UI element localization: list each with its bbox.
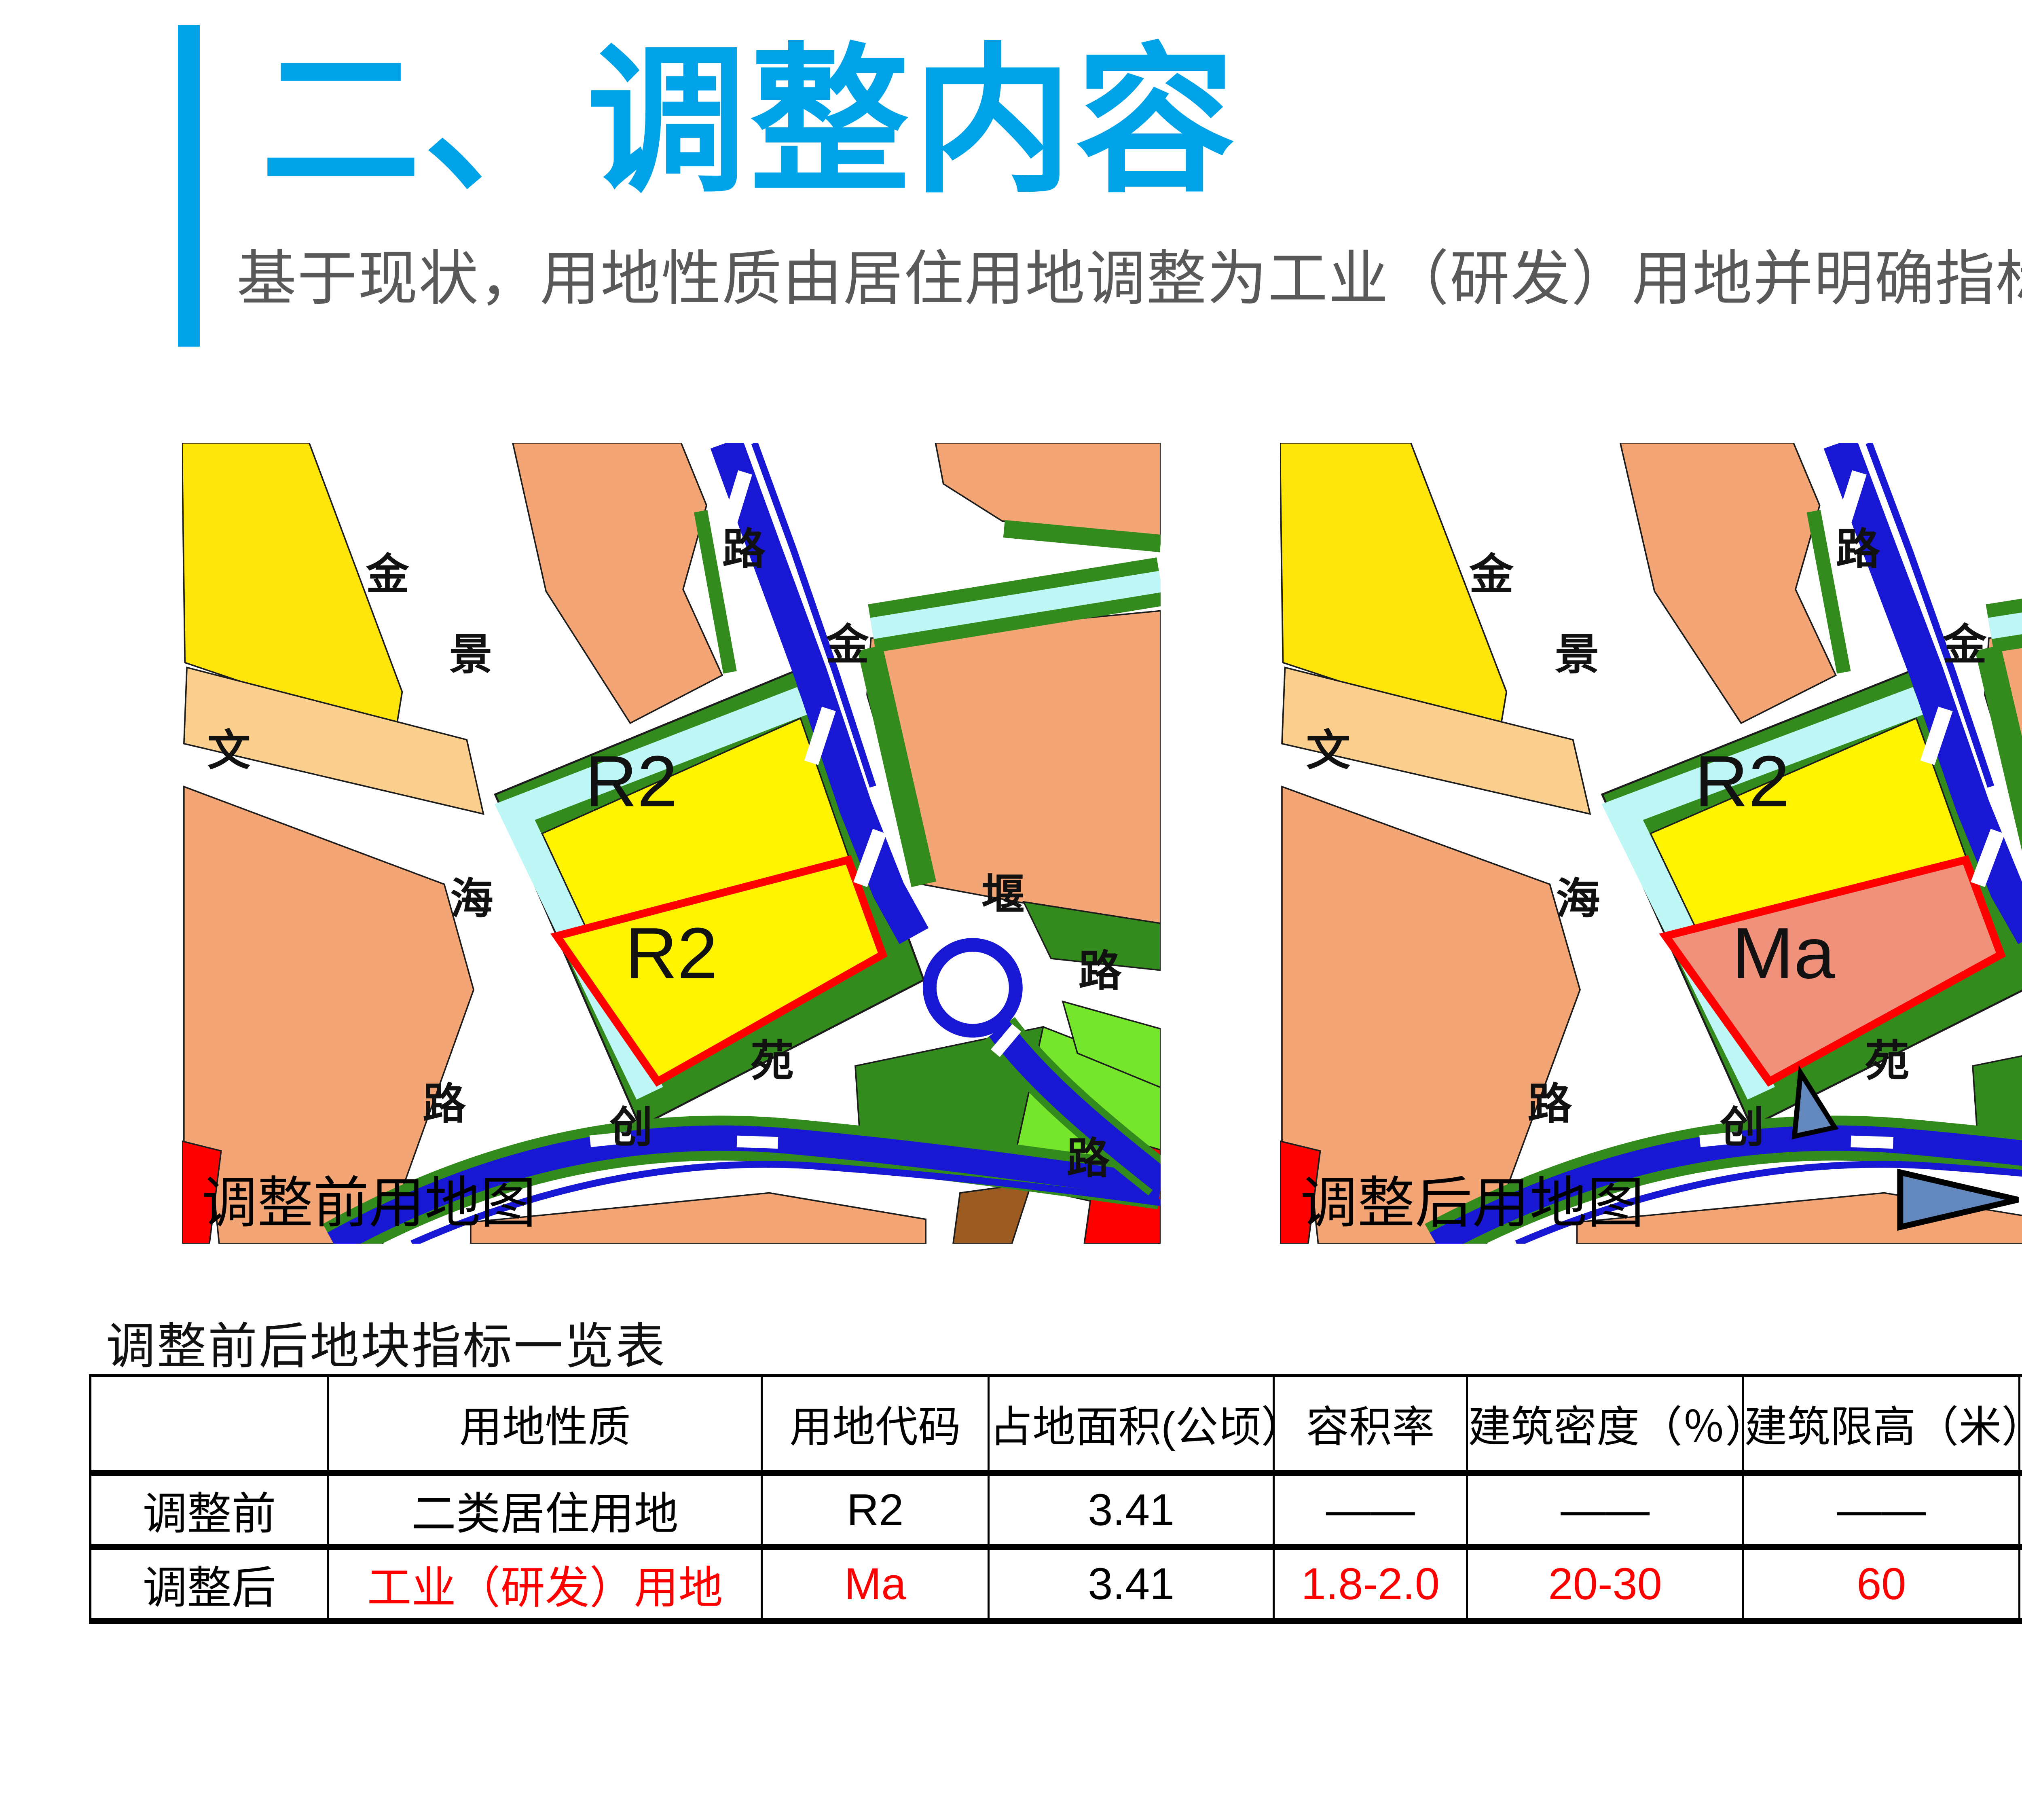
map-road-label: 苑: [751, 1037, 793, 1085]
map-caption: 调整后用地图: [1300, 1172, 1644, 1234]
table-cell: ——: [1743, 1473, 2020, 1547]
table-row-label: 调整前: [90, 1473, 328, 1547]
table-cell: ——: [1274, 1473, 1467, 1547]
table-cell: 20-30: [1467, 1547, 1743, 1621]
map-road-label: 创: [609, 1103, 653, 1151]
map-road-label: 路: [1836, 525, 1880, 573]
table-title: 调整前后地块指标一览表: [106, 1306, 666, 1378]
creek-bridge-mark: [737, 1136, 778, 1149]
table-header-cell: 容积率: [1274, 1376, 1467, 1473]
map-road-label: 金: [366, 550, 409, 599]
table-header-cell: 建筑密度（％）: [1467, 1376, 1743, 1473]
map-road-label: 金: [825, 621, 869, 669]
map-road-label: 金: [1942, 621, 1987, 669]
creek-bridge-mark: [1851, 1136, 1893, 1149]
table-header-cell: 用地性质: [328, 1376, 762, 1473]
upper-parcel-label: R2: [1694, 741, 1790, 822]
table-header-cell: 建筑限高（米）: [1743, 1376, 2020, 1473]
table-header-cell: [90, 1376, 328, 1473]
map-before-svg: 金景路金文海堰路苑路创路R2R2调整前用地图: [182, 443, 1161, 1244]
map-road-label: 苑: [1865, 1037, 1910, 1085]
page-title: 二、调整内容: [261, 28, 1239, 214]
subtitle-text: 基于现状，用地性质由居住用地调整为工业（研发）用地并明确指标。: [237, 237, 2022, 322]
map-road-label: 路: [1079, 947, 1122, 995]
upper-parcel-label: R2: [585, 741, 677, 821]
map-road-label: 金: [1469, 550, 1514, 599]
table-cell: 3.41: [989, 1547, 1274, 1621]
map-caption: 调整前用地图: [201, 1172, 536, 1234]
table-header-cell: 绿化率（％）: [2020, 1376, 2022, 1473]
table-cell: 3.41: [989, 1473, 1274, 1547]
table-cell: 1.8-2.0: [1274, 1547, 1467, 1621]
table-row: 调整前二类居住用地R23.41————————: [90, 1473, 2022, 1547]
map-road-label: 文: [1306, 726, 1351, 774]
table-header-cell: 占地面积(公顷）: [989, 1376, 1274, 1473]
table-header-row: 用地性质用地代码占地面积(公顷）容积率建筑密度（％）建筑限高（米）绿化率（％）: [90, 1376, 2022, 1473]
map-road-label: 海: [1556, 874, 1600, 923]
map-after-svg: 金景路金文海堰路苑路创路R2Ma调整后用地图出入口建议位置: [1280, 443, 2022, 1244]
map-road-label: 路: [423, 1080, 466, 1128]
table-header-cell: 用地代码: [762, 1376, 989, 1473]
table-cell: 二类居住用地: [328, 1473, 762, 1547]
landuse-map-before: 金景路金文海堰路苑路创路R2R2调整前用地图: [182, 443, 1161, 1244]
map-road-label: 路: [1067, 1134, 1110, 1183]
table-cell: ——: [2020, 1473, 2022, 1547]
lower-parcel-label: R2: [625, 912, 718, 993]
map-road-label: 景: [1555, 631, 1599, 679]
table-cell: 工业（研发）用地: [328, 1547, 762, 1621]
landuse-map-after: 金景路金文海堰路苑路创路R2Ma调整后用地图出入口建议位置: [1280, 443, 2022, 1244]
map-road-label: 路: [1528, 1079, 1573, 1128]
map-road-label: 景: [449, 631, 492, 679]
table-row-label: 调整后: [90, 1547, 328, 1621]
table-row: 调整后工业（研发）用地Ma3.411.8-2.020-306030-40: [90, 1547, 2022, 1621]
map-road-label: 海: [450, 875, 493, 923]
indicator-table: 用地性质用地代码占地面积(公顷）容积率建筑密度（％）建筑限高（米）绿化率（％）调…: [89, 1374, 2022, 1624]
map-road-label: 文: [207, 726, 251, 775]
table-cell: Ma: [762, 1547, 989, 1621]
table-cell: ——: [1467, 1473, 1743, 1547]
table-cell: 30-40: [2020, 1547, 2022, 1621]
title-accent-bar: [178, 25, 200, 347]
map-road-label: 创: [1720, 1103, 1764, 1151]
lower-parcel-label: Ma: [1732, 913, 1835, 994]
map-road-label: 路: [722, 525, 766, 574]
map-road-label: 堰: [981, 871, 1024, 919]
slide-canvas: 二、调整内容 基于现状，用地性质由居住用地调整为工业（研发）用地并明确指标。 金…: [0, 0, 2022, 1820]
table-cell: 60: [1743, 1547, 2020, 1621]
table-cell: R2: [762, 1473, 989, 1547]
